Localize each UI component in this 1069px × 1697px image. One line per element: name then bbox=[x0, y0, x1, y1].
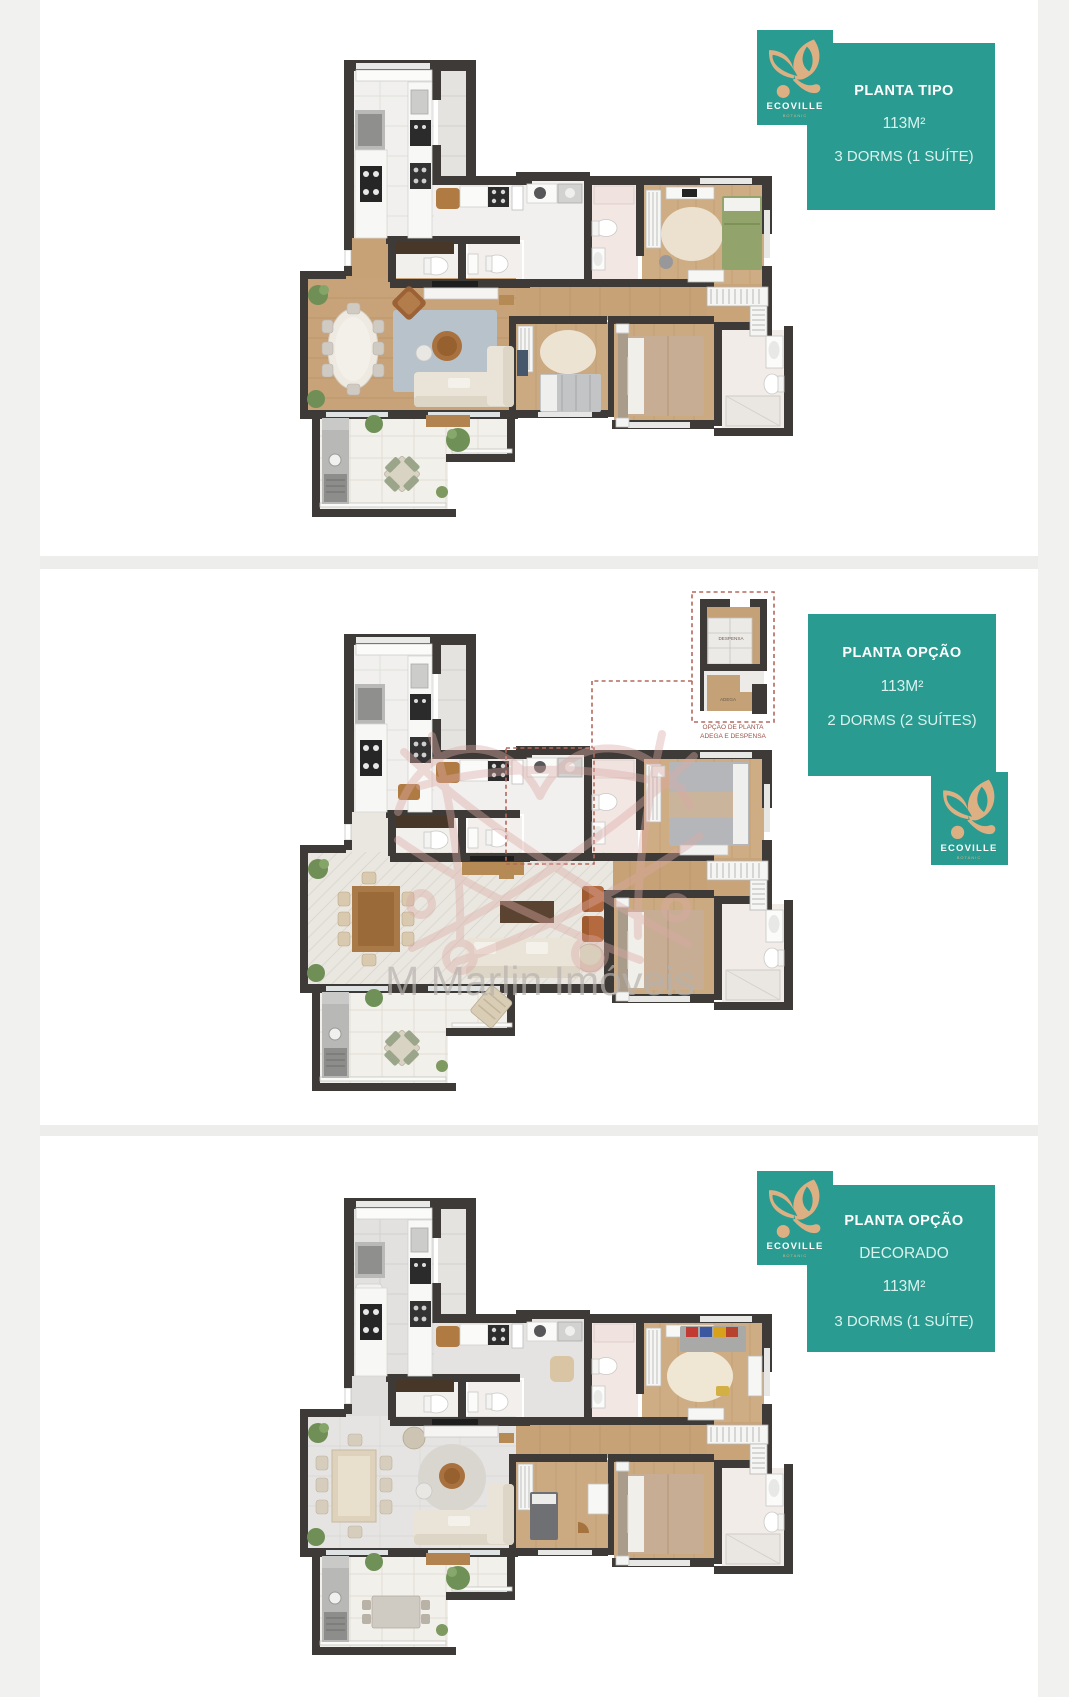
svg-text:M Marlin Imóveis: M Marlin Imóveis bbox=[385, 958, 695, 1004]
svg-text:ADEGA E DESPENSA: ADEGA E DESPENSA bbox=[700, 733, 766, 740]
svg-text:ADEGA: ADEGA bbox=[720, 697, 737, 702]
svg-text:ECOVILLE: ECOVILLE bbox=[766, 101, 823, 112]
svg-text:PLANTA OPÇÃO: PLANTA OPÇÃO bbox=[842, 643, 961, 661]
svg-text:DECORADO: DECORADO bbox=[859, 1245, 949, 1262]
svg-text:PLANTA TIPO: PLANTA TIPO bbox=[854, 83, 953, 99]
svg-text:3 DORMS (1 SUÍTE): 3 DORMS (1 SUÍTE) bbox=[834, 148, 973, 165]
svg-text:DESPENSA: DESPENSA bbox=[718, 636, 744, 641]
svg-text:113M²: 113M² bbox=[881, 678, 924, 695]
svg-text:BOTANIC: BOTANIC bbox=[957, 855, 981, 860]
svg-text:PLANTA OPÇÃO: PLANTA OPÇÃO bbox=[844, 1211, 963, 1229]
svg-text:ECOVILLE: ECOVILLE bbox=[766, 1241, 823, 1252]
svg-text:ECOVILLE: ECOVILLE bbox=[940, 843, 997, 854]
svg-text:2 DORMS (2 SUÍTES): 2 DORMS (2 SUÍTES) bbox=[827, 712, 976, 729]
svg-text:3 DORMS (1 SUÍTE): 3 DORMS (1 SUÍTE) bbox=[834, 1313, 973, 1330]
svg-text:BOTANIC: BOTANIC bbox=[783, 1253, 807, 1258]
svg-text:BOTANIC: BOTANIC bbox=[783, 113, 807, 118]
svg-text:113M²: 113M² bbox=[883, 1278, 926, 1295]
svg-text:OPÇÃO DE PLANTA: OPÇÃO DE PLANTA bbox=[703, 722, 765, 731]
svg-text:113M²: 113M² bbox=[883, 115, 926, 132]
